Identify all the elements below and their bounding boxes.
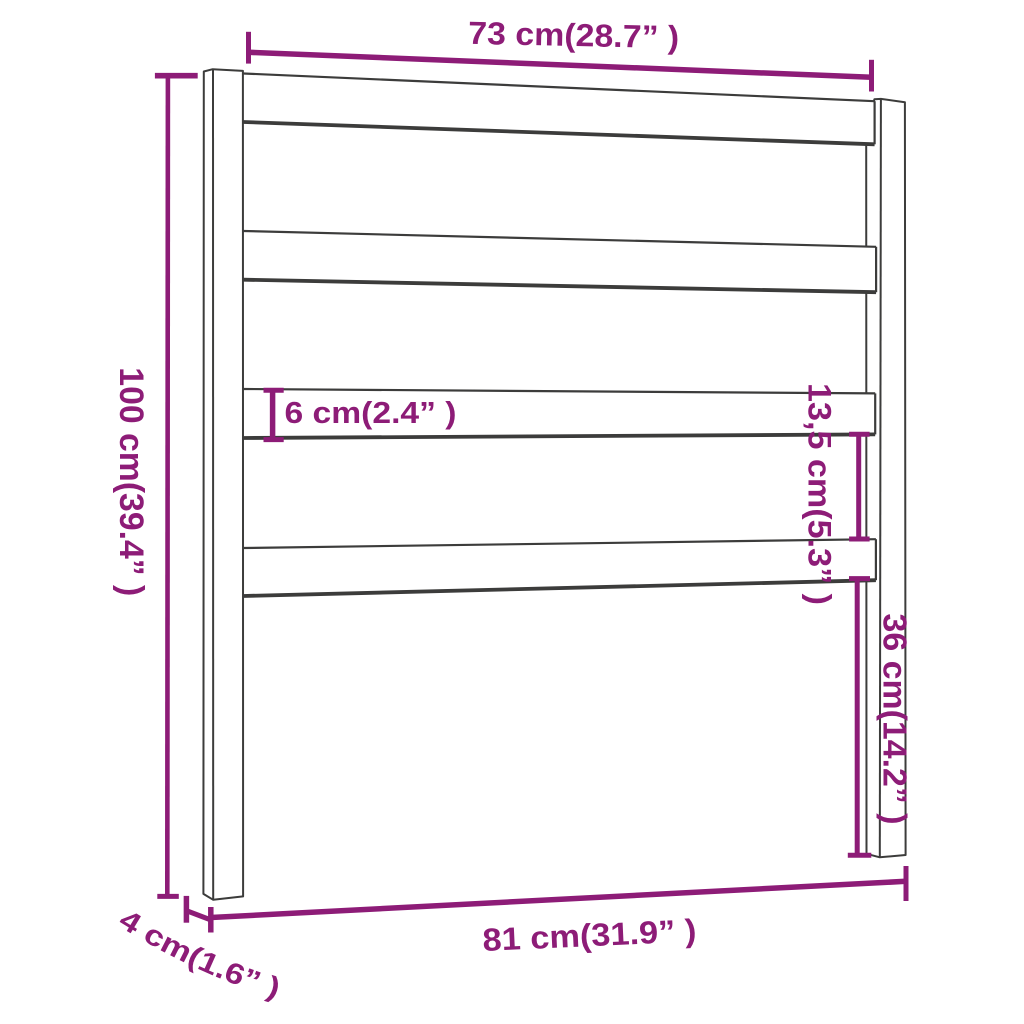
svg-text:73 cm(28.7” ): 73 cm(28.7” ) [468, 15, 680, 55]
svg-text:13,5 cm(5.3” ): 13,5 cm(5.3” ) [802, 383, 838, 605]
svg-text:6 cm(2.4” ): 6 cm(2.4” ) [285, 395, 457, 430]
svg-text:100 cm(39.4” ): 100 cm(39.4” ) [112, 367, 150, 596]
svg-text:36 cm(14.2” ): 36 cm(14.2” ) [877, 614, 914, 825]
